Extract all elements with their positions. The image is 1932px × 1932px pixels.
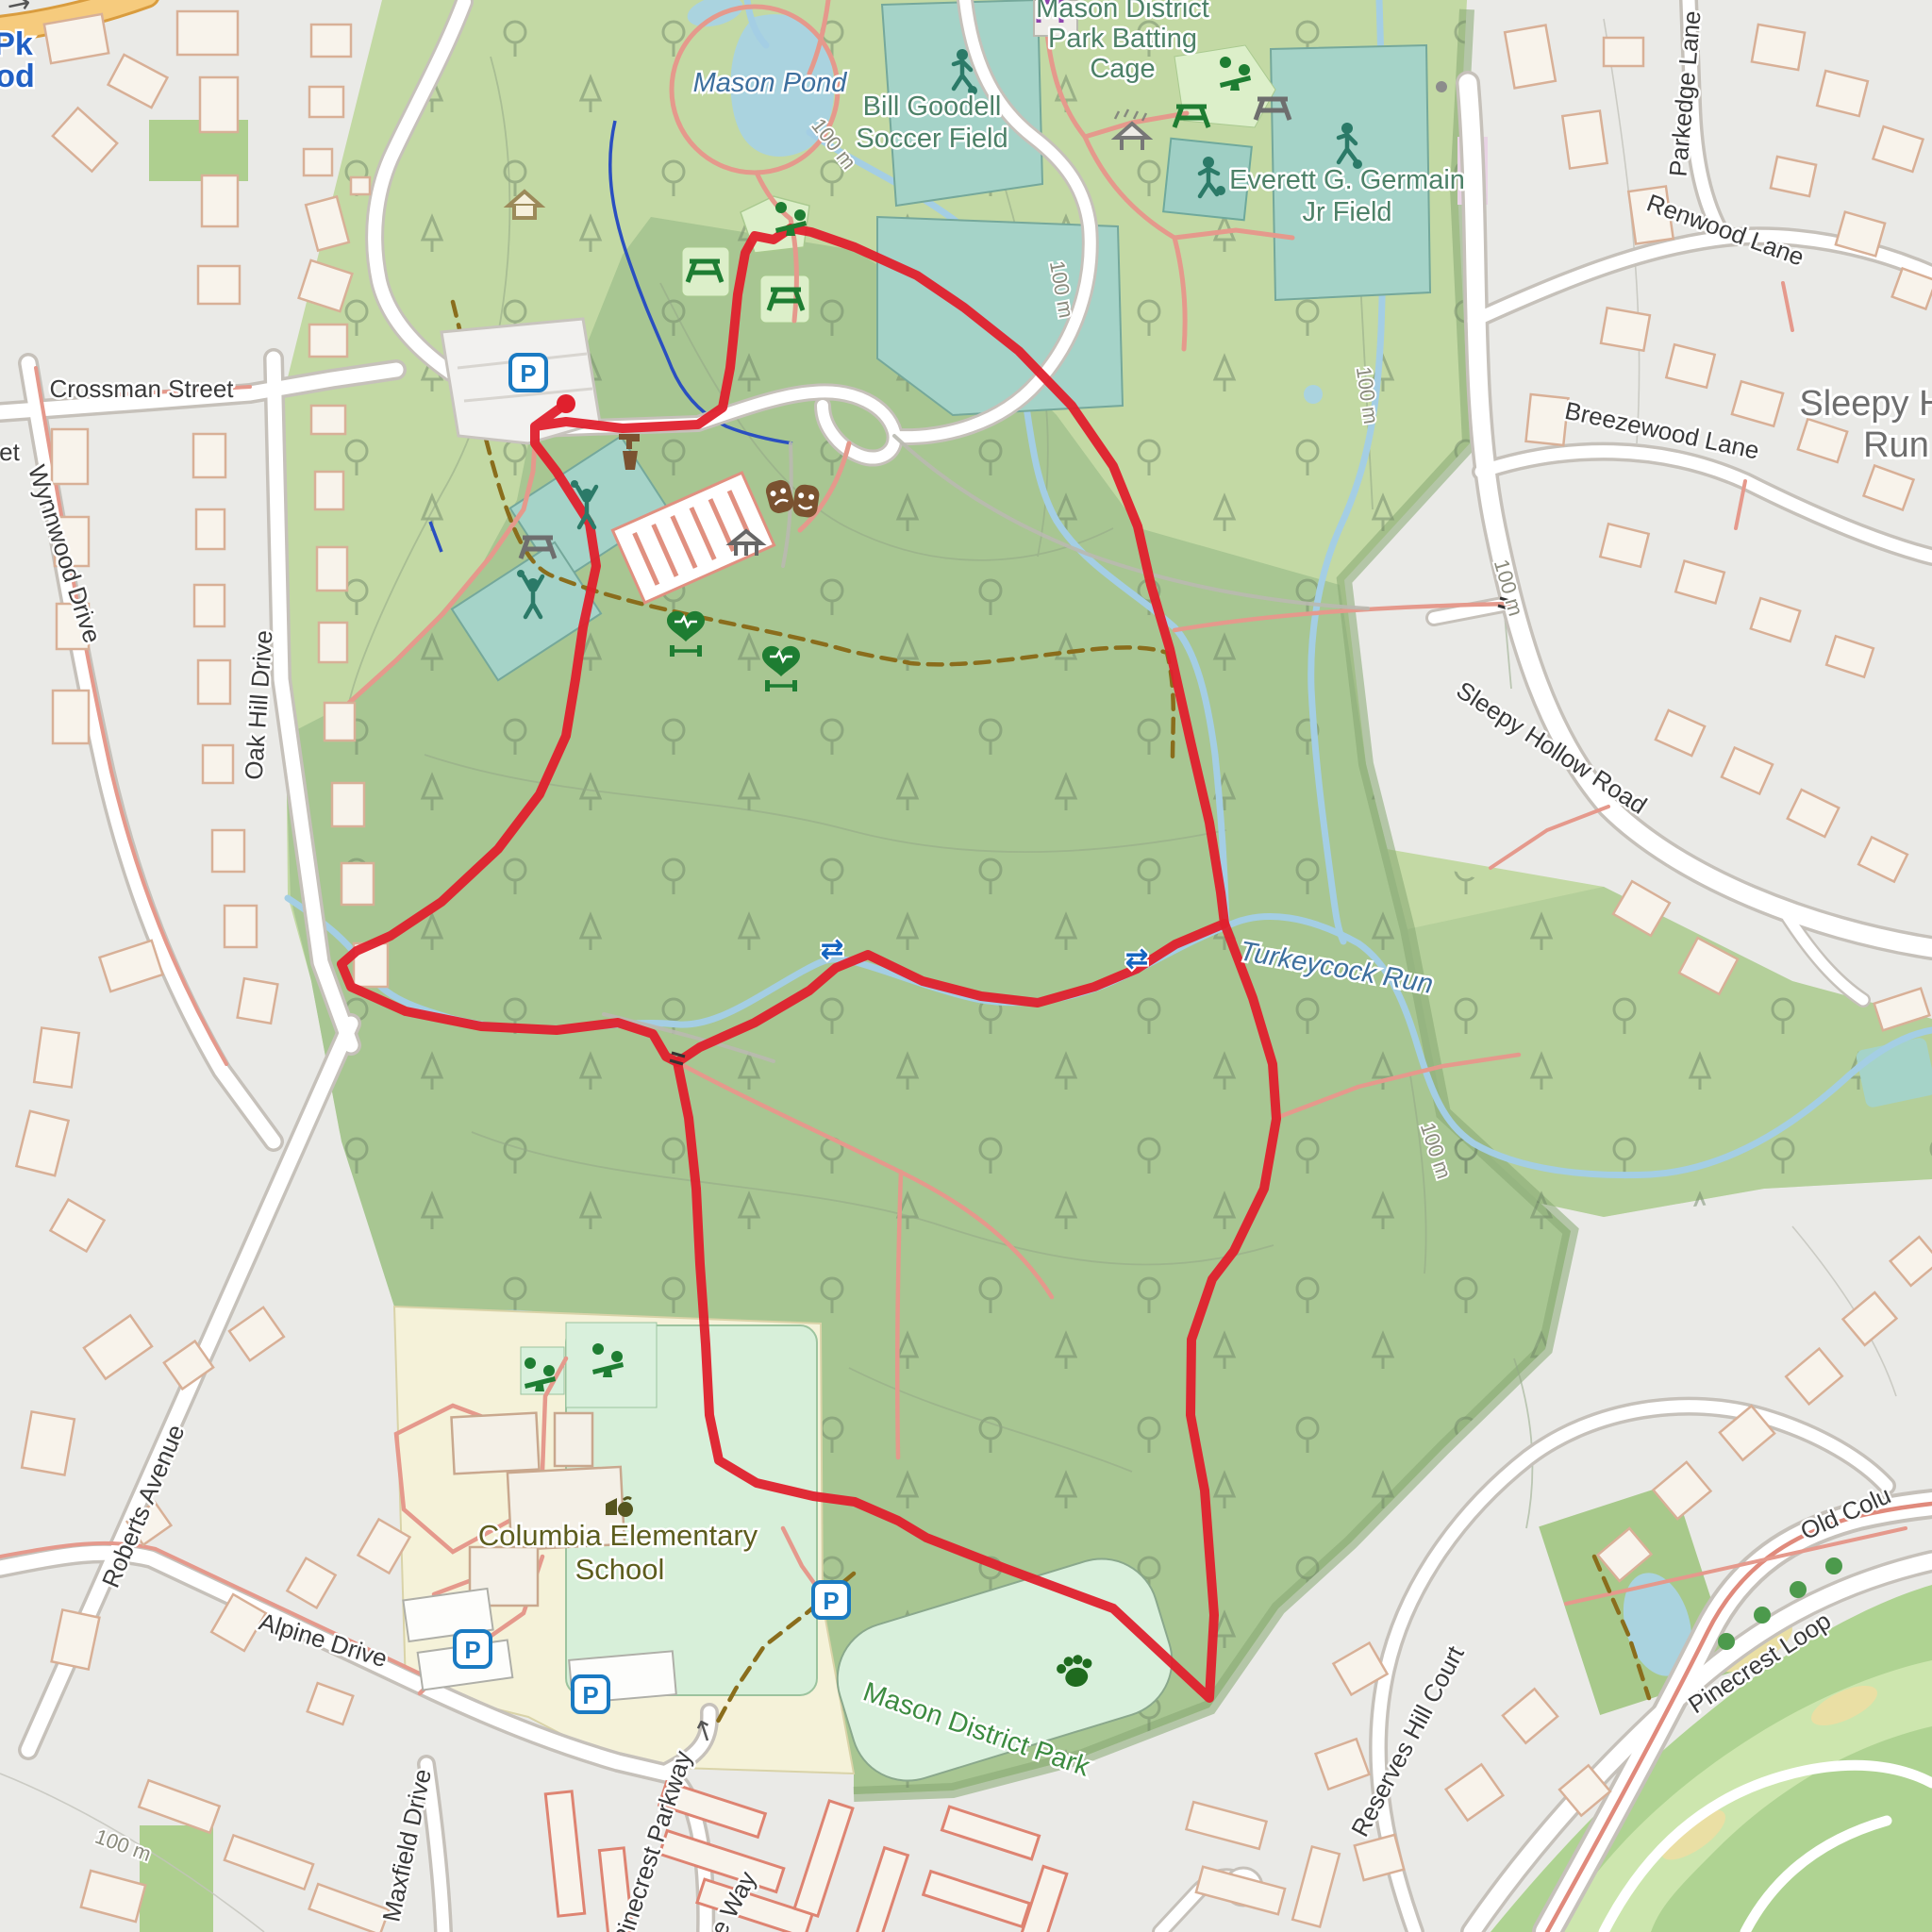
svg-text:P: P [520,359,536,388]
svg-text:Soccer Field: Soccer Field [856,124,1008,154]
svg-text:Bill Goodell: Bill Goodell [863,92,1002,122]
svg-text:P: P [582,1681,598,1709]
road-end-dot [1436,81,1447,92]
svg-text:od: od [0,58,35,94]
svg-text:Park Batting: Park Batting [1048,24,1197,54]
street-label-crossman: Crossman Street [49,375,234,403]
svg-text:Sleepy Ho: Sleepy Ho [1799,384,1932,424]
parking-icon: P [573,1676,608,1712]
svg-text:Cage: Cage [1090,54,1155,84]
svg-text:P: P [823,1587,839,1615]
pond-label: Mason Pond [693,68,848,98]
small-pond [1304,385,1323,404]
route-start-marker [557,394,575,413]
svg-text:Run: Run [1863,425,1929,465]
svg-text:Pk: Pk [0,26,33,62]
ford-icon: ⇄ [820,933,843,966]
svg-text:Jr Field: Jr Field [1302,197,1391,227]
map-canvas[interactable]: P P P P [0,0,1932,1932]
svg-text:Mason District: Mason District [1036,0,1209,24]
ford-icon: ⇄ [1124,942,1148,975]
svg-text:School: School [575,1553,665,1586]
svg-text:Columbia Elementary: Columbia Elementary [478,1519,758,1552]
parking-icon: P [455,1631,491,1667]
water-label-partial: Pk od [0,26,35,94]
svg-text:P: P [464,1636,480,1664]
parking-icon: P [813,1582,849,1618]
svg-text:Everett G. Germain: Everett G. Germain [1229,165,1465,195]
green-patch [140,1825,213,1932]
parking-icon: P [510,355,546,391]
street-label-partial-et: et [0,438,21,466]
